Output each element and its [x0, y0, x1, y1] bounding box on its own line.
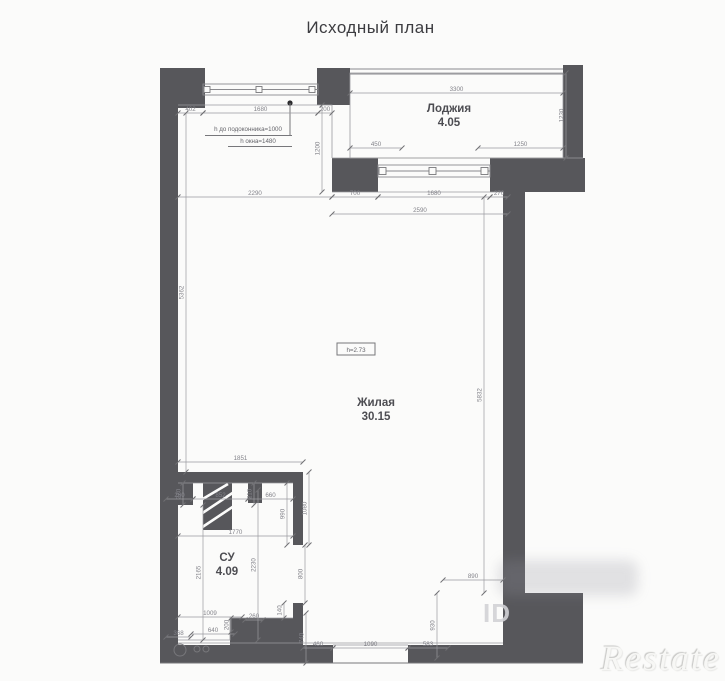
dimension: 3300 — [348, 86, 566, 95]
dimension-label: 200 — [320, 106, 331, 113]
dimension-label: 1230 — [559, 108, 566, 122]
dimension: 2290 — [176, 190, 335, 199]
dimension-label: 740 — [299, 632, 306, 643]
dimension: 1090 — [331, 641, 411, 650]
dimension-label: 460 — [313, 641, 324, 648]
dimension: 890 — [441, 573, 506, 582]
room-area: 4.05 — [438, 117, 461, 129]
restate-logo: Restate — [601, 637, 721, 679]
dimension: 800 — [298, 543, 308, 606]
dimension: 1680 — [201, 106, 321, 115]
dimension-label: 1680 — [427, 190, 441, 197]
dimension-label: 1080 — [302, 501, 309, 515]
dimension: 5832 — [477, 195, 487, 596]
dimension-label: 368 — [173, 630, 184, 637]
dimension-label: 2590 — [413, 207, 427, 214]
window-icon — [378, 165, 490, 177]
dimension-label: 5362 — [179, 285, 186, 299]
dimension-label: 2290 — [248, 190, 262, 197]
blurred-watermark — [498, 560, 638, 596]
window-icon — [203, 84, 318, 95]
dimension: 990 — [280, 481, 290, 548]
dimension: 2590 — [330, 207, 511, 216]
leader-lines — [205, 100, 375, 355]
dimension-label: 270 — [494, 190, 505, 197]
dimension-label: 990 — [280, 508, 287, 519]
dimension-label: 1009 — [203, 610, 217, 617]
dimension-label: 140 — [277, 605, 284, 616]
dimension-label: 5832 — [477, 388, 484, 402]
dimension: 1851 — [176, 455, 306, 464]
dimension-label: 1090 — [364, 641, 378, 648]
dimension-label: 1770 — [229, 529, 243, 536]
dimension-label: 640 — [208, 627, 219, 634]
dimension-label: 450 — [371, 141, 382, 148]
dimension: 450 — [348, 141, 405, 150]
dimension: 5362 — [179, 111, 189, 475]
window-note: h до подоконника=1000 — [214, 126, 282, 133]
dimension-label: 930 — [430, 620, 437, 631]
dimension-label: 2230 — [251, 558, 258, 572]
room-area: 4.09 — [216, 566, 238, 578]
dimension-label: 200 — [224, 619, 231, 630]
room-name: СУ — [219, 552, 235, 564]
dimension: 1680 — [376, 190, 493, 199]
dimension-label: 1680 — [254, 106, 268, 113]
floor-plan-image: Исходный план — [0, 0, 725, 681]
window-note: h окна=1480 — [240, 138, 276, 145]
room-name: Лоджия — [427, 103, 471, 115]
dimension-label: 1200 — [315, 141, 322, 155]
dimension-label: 660 — [265, 492, 276, 499]
dimension: 140 — [277, 601, 287, 621]
dimension: 1200 — [315, 103, 325, 195]
dimension-label: 852 — [215, 492, 226, 499]
dimension-label: 890 — [468, 573, 479, 580]
dimension: 1770 — [176, 529, 296, 538]
dimension: 1250 — [476, 141, 566, 150]
ceiling-height-note: h=2.73 — [346, 347, 366, 354]
room-area: 30.15 — [362, 411, 391, 423]
dimension-label: 1851 — [234, 455, 248, 462]
dimension-label: 210 — [247, 488, 254, 499]
dimension-label: 2165 — [196, 565, 203, 579]
dimension-label: 700 — [350, 190, 361, 197]
dimension-label: 220 — [176, 488, 183, 499]
dimension-label: 1250 — [514, 141, 528, 148]
dimension-label: 583 — [423, 641, 434, 648]
id-watermark: ID — [483, 598, 511, 629]
dimension-label: 800 — [298, 568, 305, 579]
room-name: Жилая — [356, 397, 395, 409]
dimension-label: 3300 — [450, 86, 464, 93]
